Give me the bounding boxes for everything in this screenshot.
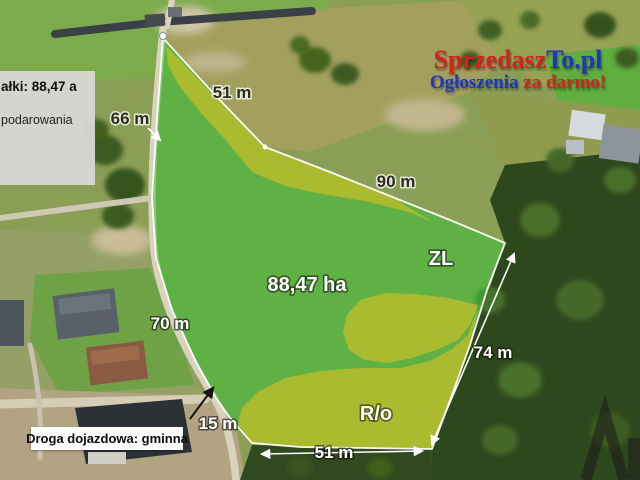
plot-info-panel: ałki: 88,47 a podarowania — [0, 71, 95, 185]
measurement-top-label: 51 m — [213, 83, 252, 102]
concrete-slab — [88, 452, 126, 464]
measurement-bottom-label: 51 m — [315, 443, 354, 462]
access-road-text: Droga dojazdowa: gminna — [26, 431, 188, 446]
house-roof-partial — [0, 300, 24, 346]
building-top-2 — [168, 7, 182, 17]
shed-roof — [566, 140, 584, 154]
house-roof-white — [568, 110, 605, 140]
zone-zl-label: ZL — [429, 248, 453, 270]
area-label: 88,47 ha — [268, 274, 348, 296]
plot-area-text: ałki: 88,47 a — [1, 79, 95, 94]
measurement-bottom-left-label: 15 m — [199, 414, 238, 433]
zone-ro-label: R/o — [360, 403, 392, 425]
aerial-photo: 51 m 66 m 90 m 70 m 74 m 15 m 51 m ZL R/… — [0, 0, 640, 480]
vertex-marker — [263, 145, 268, 150]
house-roof-gray-2 — [599, 124, 640, 163]
plot-zoning-text: podarowania — [1, 113, 95, 127]
measurement-upper-right-label: 90 m — [377, 172, 416, 191]
access-road-panel: Droga dojazdowa: gminna — [31, 427, 183, 450]
measurement-east-label: 74 m — [474, 343, 513, 362]
listing-photo-stage: 51 m 66 m 90 m 70 m 74 m 15 m 51 m ZL R/… — [0, 0, 640, 480]
building-top — [145, 13, 166, 26]
measurement-left-label: 66 m — [111, 109, 150, 128]
corner-pin-marker — [160, 33, 167, 40]
measurement-road-label: 70 m — [151, 314, 190, 333]
